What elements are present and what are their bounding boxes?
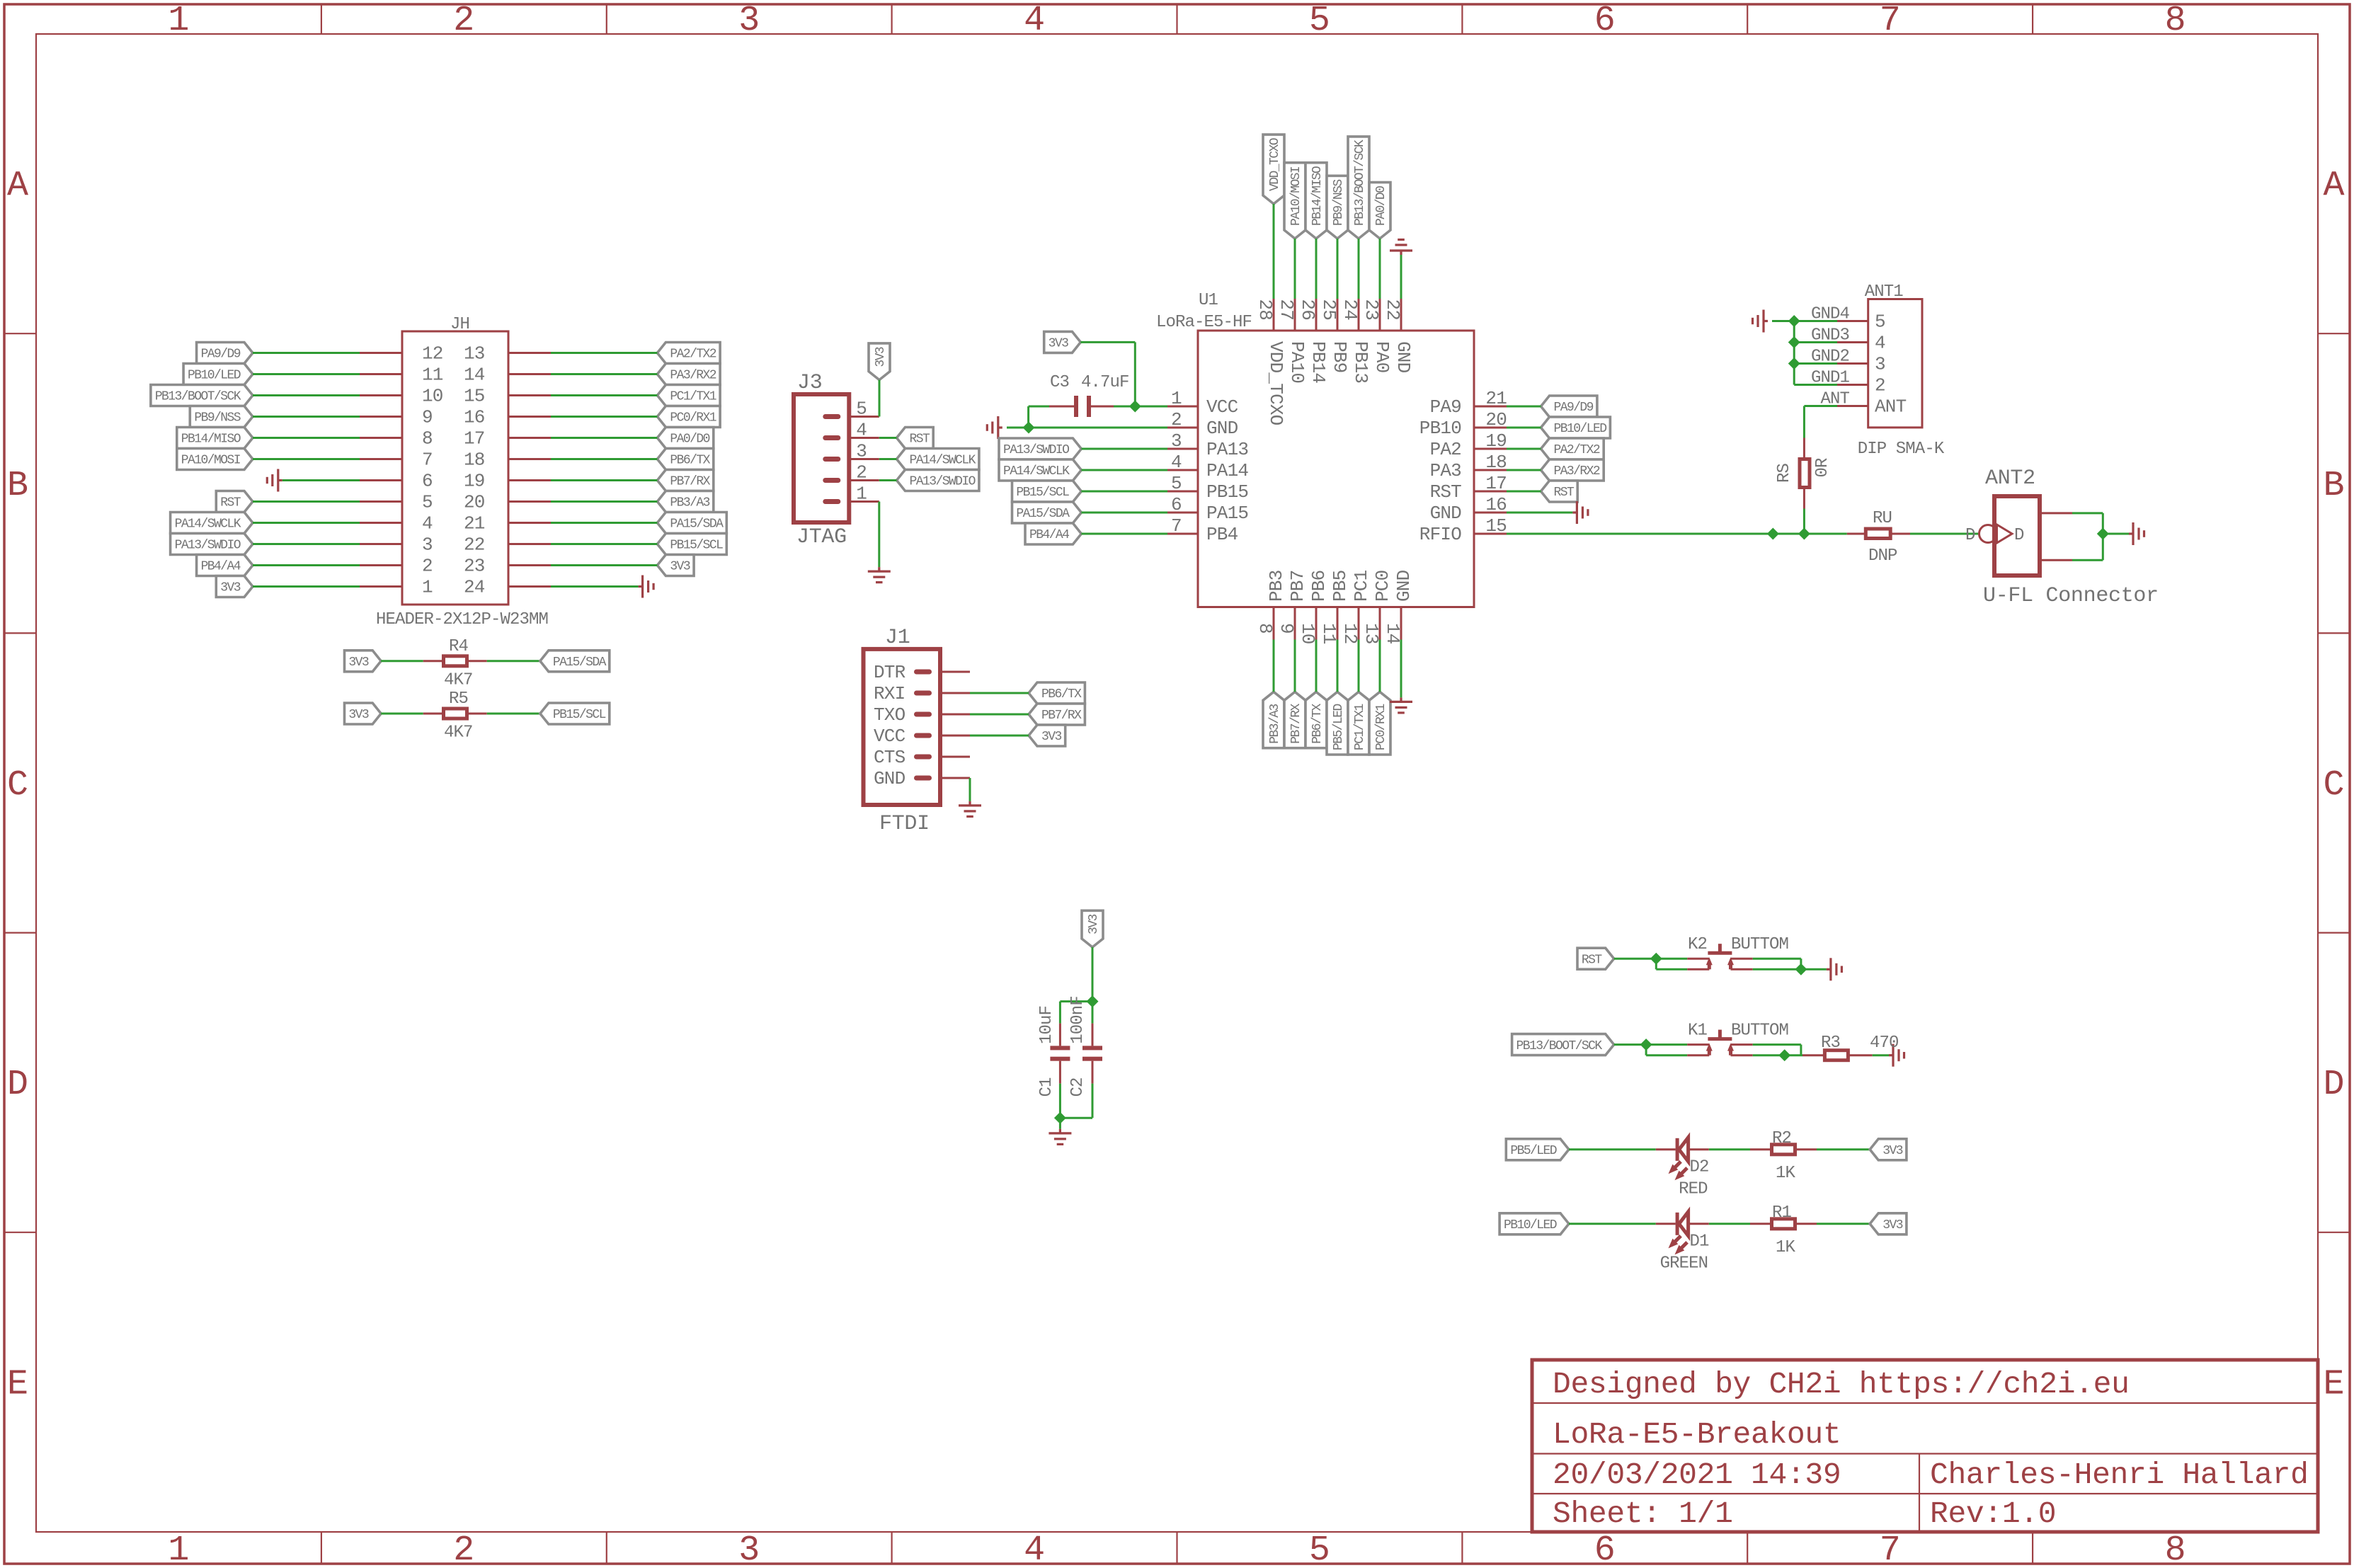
svg-text:20: 20 — [1485, 409, 1507, 430]
svg-text:23: 23 — [464, 556, 485, 577]
svg-text:PA15/SDA: PA15/SDA — [1016, 507, 1070, 521]
svg-text:4.7uF: 4.7uF — [1081, 373, 1129, 392]
svg-text:4K7: 4K7 — [444, 671, 473, 690]
svg-text:PB6/TX: PB6/TX — [670, 454, 710, 468]
svg-text:ANT: ANT — [1875, 396, 1907, 418]
svg-text:PB10/LED: PB10/LED — [1504, 1218, 1557, 1232]
svg-text:19: 19 — [464, 471, 485, 492]
svg-text:RST: RST — [220, 496, 241, 510]
svg-text:PA3: PA3 — [1430, 460, 1461, 481]
svg-text:6: 6 — [1171, 494, 1182, 515]
svg-text:28: 28 — [1255, 299, 1276, 320]
svg-text:17: 17 — [1485, 473, 1507, 494]
svg-text:PA13/SWDIO: PA13/SWDIO — [1003, 443, 1069, 457]
svg-text:7: 7 — [1171, 515, 1182, 537]
svg-text:5: 5 — [856, 399, 867, 420]
svg-text:TXO: TXO — [874, 704, 905, 726]
svg-text:RXI: RXI — [874, 683, 905, 704]
svg-text:PA15/SDA: PA15/SDA — [670, 517, 724, 532]
svg-text:JH: JH — [450, 315, 469, 334]
svg-text:C: C — [7, 765, 28, 806]
svg-text:VDD_TCXO: VDD_TCXO — [1268, 138, 1282, 191]
svg-text:26: 26 — [1297, 299, 1318, 320]
svg-text:7: 7 — [422, 450, 433, 471]
svg-text:DTR: DTR — [874, 662, 905, 683]
svg-text:RST: RST — [1554, 486, 1575, 500]
svg-text:RST: RST — [1582, 953, 1602, 967]
svg-text:PA14: PA14 — [1206, 460, 1248, 481]
svg-text:4: 4 — [422, 513, 433, 534]
svg-text:8: 8 — [2165, 1, 2186, 41]
svg-text:3V3: 3V3 — [874, 347, 888, 367]
svg-text:D: D — [7, 1065, 28, 1105]
svg-text:9: 9 — [422, 407, 433, 428]
svg-text:A: A — [7, 166, 28, 207]
svg-text:5: 5 — [1309, 1, 1330, 41]
svg-text:PA9: PA9 — [1430, 396, 1461, 418]
svg-text:GND: GND — [874, 768, 905, 789]
svg-text:Charles-Henri Hallard: Charles-Henri Hallard — [1930, 1458, 2309, 1492]
svg-text:PA2/TX2: PA2/TX2 — [670, 348, 716, 362]
svg-text:6: 6 — [1594, 1, 1616, 41]
svg-text:PB13: PB13 — [1350, 341, 1371, 383]
svg-text:BUTTOM: BUTTOM — [1731, 935, 1788, 954]
svg-text:21: 21 — [464, 513, 485, 534]
svg-text:RS: RS — [1775, 464, 1794, 483]
svg-text:E: E — [7, 1364, 28, 1404]
svg-text:2: 2 — [1875, 375, 1885, 396]
svg-text:D: D — [2014, 526, 2024, 545]
svg-text:15: 15 — [1485, 515, 1507, 537]
svg-text:6: 6 — [1594, 1530, 1616, 1568]
svg-text:PC1/TX1: PC1/TX1 — [670, 390, 716, 404]
svg-text:PA2/TX2: PA2/TX2 — [1553, 443, 1599, 457]
svg-text:Sheet: 1/1: Sheet: 1/1 — [1553, 1497, 1733, 1531]
svg-text:3V3: 3V3 — [1041, 730, 1061, 744]
svg-text:20: 20 — [464, 492, 485, 513]
svg-text:RST: RST — [910, 433, 930, 447]
svg-text:8: 8 — [422, 428, 433, 450]
svg-text:1K: 1K — [1776, 1238, 1796, 1257]
svg-text:Rev:1.0: Rev:1.0 — [1930, 1497, 2056, 1531]
svg-text:PB5/LED: PB5/LED — [1510, 1144, 1556, 1158]
svg-text:PA3/RX2: PA3/RX2 — [670, 369, 716, 383]
svg-text:PA14/SWCLK: PA14/SWCLK — [909, 454, 976, 468]
svg-text:3V3: 3V3 — [1882, 1144, 1902, 1158]
svg-text:C: C — [2323, 765, 2344, 806]
svg-text:J3: J3 — [797, 371, 822, 395]
svg-text:PB9: PB9 — [1329, 341, 1350, 372]
svg-text:4: 4 — [1024, 1, 1045, 41]
svg-text:19: 19 — [1485, 430, 1507, 452]
svg-text:ANT1: ANT1 — [1865, 282, 1904, 302]
svg-text:15: 15 — [464, 386, 485, 407]
svg-text:D: D — [1965, 526, 1975, 545]
svg-text:GND: GND — [1206, 418, 1238, 439]
svg-text:PB14/MISO: PB14/MISO — [1310, 166, 1325, 226]
svg-text:R1: R1 — [1772, 1203, 1792, 1223]
svg-text:PB13/BOOT/SCK: PB13/BOOT/SCK — [1516, 1039, 1603, 1053]
svg-text:PB5: PB5 — [1330, 571, 1351, 602]
svg-text:17: 17 — [464, 428, 485, 450]
svg-text:PA0/D0: PA0/D0 — [670, 433, 709, 447]
svg-text:7: 7 — [1880, 1, 1901, 41]
svg-text:2: 2 — [453, 1, 474, 41]
svg-text:PB9/NSS: PB9/NSS — [1332, 180, 1346, 226]
svg-text:GND: GND — [1430, 503, 1462, 524]
svg-text:PB15: PB15 — [1206, 481, 1248, 503]
svg-text:K1: K1 — [1688, 1021, 1708, 1040]
svg-text:R4: R4 — [449, 637, 469, 656]
svg-text:PB14/MISO: PB14/MISO — [181, 433, 241, 447]
svg-text:24: 24 — [1339, 299, 1361, 320]
svg-text:PC1/TX1: PC1/TX1 — [1353, 704, 1367, 750]
svg-text:U1: U1 — [1199, 291, 1218, 310]
svg-text:BUTTOM: BUTTOM — [1731, 1021, 1788, 1040]
svg-text:4: 4 — [1024, 1530, 1045, 1568]
svg-text:DIP SMA-K: DIP SMA-K — [1858, 440, 1945, 459]
svg-text:22: 22 — [1382, 299, 1403, 320]
svg-text:PA2: PA2 — [1430, 439, 1461, 460]
svg-text:JTAG: JTAG — [796, 525, 847, 549]
svg-text:10uF: 10uF — [1037, 1006, 1056, 1044]
svg-text:R5: R5 — [449, 689, 468, 709]
svg-text:3V3: 3V3 — [348, 708, 368, 722]
svg-text:PB7/RX: PB7/RX — [670, 475, 710, 489]
svg-text:PA0: PA0 — [1371, 341, 1393, 372]
svg-text:16: 16 — [1485, 494, 1507, 515]
svg-text:PB3: PB3 — [1266, 571, 1287, 602]
svg-text:PC0/RX1: PC0/RX1 — [1374, 704, 1388, 750]
svg-text:B: B — [2323, 466, 2344, 506]
svg-text:24: 24 — [464, 577, 485, 598]
svg-text:12: 12 — [422, 343, 443, 365]
svg-text:PB7/RX: PB7/RX — [1041, 709, 1082, 723]
svg-text:PA15: PA15 — [1206, 503, 1248, 524]
svg-text:3: 3 — [422, 534, 433, 556]
svg-text:4: 4 — [1875, 333, 1885, 354]
svg-text:4: 4 — [1171, 452, 1182, 473]
svg-text:PB10/LED: PB10/LED — [1554, 422, 1607, 436]
svg-text:PA3/RX2: PA3/RX2 — [1553, 464, 1599, 479]
svg-text:7: 7 — [1880, 1530, 1901, 1568]
svg-text:25: 25 — [1318, 299, 1339, 320]
svg-text:PB6/TX: PB6/TX — [1041, 687, 1082, 702]
svg-text:PB4/A4: PB4/A4 — [201, 560, 241, 574]
svg-text:1K: 1K — [1776, 1164, 1796, 1183]
svg-text:3: 3 — [1875, 354, 1885, 375]
svg-text:PA13: PA13 — [1206, 439, 1248, 460]
svg-text:LoRa-E5-Breakout: LoRa-E5-Breakout — [1553, 1417, 1841, 1452]
svg-text:PA0/D0: PA0/D0 — [1374, 186, 1388, 226]
svg-text:8: 8 — [1255, 623, 1276, 634]
svg-text:U-FL Connector: U-FL Connector — [1983, 584, 2159, 608]
svg-text:PA10: PA10 — [1286, 341, 1308, 383]
svg-text:HEADER-2X12P-W23MM: HEADER-2X12P-W23MM — [376, 610, 548, 629]
svg-text:VCC: VCC — [1206, 396, 1238, 418]
svg-text:PB7: PB7 — [1287, 571, 1308, 602]
svg-text:3: 3 — [856, 441, 867, 462]
svg-text:100nF: 100nF — [1068, 996, 1087, 1044]
svg-text:PB13/BOOT/SCK: PB13/BOOT/SCK — [155, 390, 241, 404]
svg-text:3V3: 3V3 — [670, 560, 690, 574]
svg-text:21: 21 — [1485, 388, 1507, 409]
svg-text:470: 470 — [1870, 1034, 1899, 1053]
svg-text:PB5/LED: PB5/LED — [1332, 704, 1346, 750]
svg-text:Designed by CH2i https://ch2i.: Designed by CH2i https://ch2i.eu — [1553, 1367, 2130, 1402]
svg-text:3V3: 3V3 — [348, 656, 368, 670]
svg-text:1: 1 — [168, 1530, 189, 1568]
svg-text:3V3: 3V3 — [220, 581, 240, 595]
svg-text:PA13/SWDIO: PA13/SWDIO — [175, 539, 241, 553]
svg-text:5: 5 — [1875, 311, 1885, 333]
svg-text:23: 23 — [1361, 299, 1382, 320]
svg-text:R2: R2 — [1772, 1129, 1791, 1148]
svg-text:14: 14 — [464, 365, 485, 386]
svg-text:CTS: CTS — [874, 747, 905, 768]
svg-text:27: 27 — [1276, 299, 1297, 320]
svg-text:16: 16 — [464, 407, 485, 428]
svg-text:3: 3 — [1171, 430, 1182, 452]
svg-text:PB10: PB10 — [1419, 418, 1461, 439]
svg-text:4K7: 4K7 — [444, 723, 473, 743]
svg-text:PA10/MOSI: PA10/MOSI — [1289, 166, 1303, 226]
svg-text:PB4/A4: PB4/A4 — [1029, 528, 1069, 542]
svg-text:PB13/BOOT/SCK: PB13/BOOT/SCK — [1353, 139, 1367, 226]
svg-text:6: 6 — [422, 471, 433, 492]
svg-text:RU: RU — [1873, 509, 1892, 528]
svg-text:RFIO: RFIO — [1419, 524, 1461, 545]
svg-text:PC0: PC0 — [1372, 571, 1393, 602]
svg-text:ANT2: ANT2 — [1985, 467, 2035, 491]
svg-text:K2: K2 — [1688, 935, 1707, 954]
svg-text:PB9/NSS: PB9/NSS — [194, 411, 240, 425]
svg-text:PB3/A3: PB3/A3 — [670, 496, 709, 510]
svg-text:4: 4 — [856, 420, 867, 441]
svg-text:5: 5 — [1171, 473, 1182, 494]
svg-text:PC1: PC1 — [1351, 570, 1372, 602]
svg-text:DNP: DNP — [1868, 546, 1897, 566]
svg-text:10: 10 — [422, 386, 443, 407]
svg-text:PB10/LED: PB10/LED — [188, 369, 241, 383]
svg-text:D1: D1 — [1690, 1232, 1710, 1252]
svg-text:5: 5 — [1309, 1530, 1330, 1568]
svg-text:2: 2 — [422, 556, 433, 577]
svg-text:13: 13 — [464, 343, 485, 365]
svg-text:D: D — [2323, 1065, 2344, 1105]
svg-text:18: 18 — [464, 450, 485, 471]
svg-text:9: 9 — [1276, 623, 1297, 634]
svg-text:PB7/RX: PB7/RX — [1289, 704, 1303, 744]
svg-text:PA14/SWCLK: PA14/SWCLK — [1003, 464, 1070, 479]
svg-text:1: 1 — [856, 483, 867, 505]
svg-text:2: 2 — [856, 462, 867, 483]
svg-text:PB3/A3: PB3/A3 — [1268, 704, 1282, 744]
svg-text:RED: RED — [1679, 1180, 1708, 1199]
svg-text:20/03/2021 14:39: 20/03/2021 14:39 — [1553, 1458, 1841, 1492]
svg-text:3V3: 3V3 — [1882, 1218, 1902, 1232]
svg-text:C1: C1 — [1037, 1077, 1056, 1097]
svg-text:PA10/MOSI: PA10/MOSI — [181, 454, 241, 468]
svg-text:R3: R3 — [1821, 1034, 1840, 1053]
svg-text:3V3: 3V3 — [1049, 337, 1068, 351]
svg-text:PB6/TX: PB6/TX — [1310, 704, 1325, 744]
svg-text:3V3: 3V3 — [1087, 914, 1101, 934]
svg-text:GREEN: GREEN — [1660, 1254, 1708, 1274]
svg-text:A: A — [2323, 166, 2344, 207]
svg-text:3: 3 — [738, 1530, 760, 1568]
svg-text:2: 2 — [1171, 409, 1182, 430]
svg-text:D2: D2 — [1690, 1158, 1709, 1177]
svg-text:8: 8 — [2165, 1530, 2186, 1568]
svg-text:C3: C3 — [1050, 373, 1069, 392]
svg-text:1: 1 — [168, 1, 189, 41]
svg-text:PB15/SCL: PB15/SCL — [670, 539, 723, 553]
svg-text:PA9/D9: PA9/D9 — [201, 348, 241, 362]
svg-text:J1: J1 — [885, 626, 910, 650]
svg-text:PB6: PB6 — [1308, 571, 1330, 602]
svg-text:PB4: PB4 — [1206, 524, 1238, 545]
svg-text:11: 11 — [422, 365, 443, 386]
svg-text:PA9/D9: PA9/D9 — [1553, 401, 1593, 415]
svg-text:E: E — [2323, 1364, 2344, 1404]
svg-text:LoRa-E5-HF: LoRa-E5-HF — [1156, 313, 1252, 332]
svg-text:VDD_TCXO: VDD_TCXO — [1265, 341, 1286, 425]
svg-text:1: 1 — [1171, 388, 1182, 409]
svg-text:PB15/SCL: PB15/SCL — [1016, 486, 1069, 500]
svg-text:C2: C2 — [1068, 1077, 1087, 1097]
svg-text:VCC: VCC — [874, 726, 905, 747]
svg-text:22: 22 — [464, 534, 485, 556]
svg-text:0R: 0R — [1813, 458, 1832, 478]
svg-text:B: B — [7, 466, 28, 506]
svg-text:FTDI: FTDI — [879, 812, 930, 836]
svg-text:GND: GND — [1393, 570, 1415, 602]
svg-text:PA15/SDA: PA15/SDA — [553, 656, 607, 670]
svg-text:3: 3 — [738, 1, 760, 41]
svg-text:PB14: PB14 — [1308, 341, 1329, 383]
svg-text:5: 5 — [422, 492, 433, 513]
svg-text:PA14/SWCLK: PA14/SWCLK — [175, 517, 241, 532]
svg-text:2: 2 — [453, 1530, 474, 1568]
svg-text:PA13/SWDIO: PA13/SWDIO — [909, 475, 975, 489]
svg-text:18: 18 — [1485, 452, 1507, 473]
svg-text:PC0/RX1: PC0/RX1 — [670, 411, 716, 425]
svg-text:RST: RST — [1430, 481, 1462, 503]
svg-text:GND: GND — [1393, 341, 1414, 373]
svg-text:1: 1 — [422, 577, 433, 598]
svg-text:PB15/SCL: PB15/SCL — [553, 708, 606, 722]
